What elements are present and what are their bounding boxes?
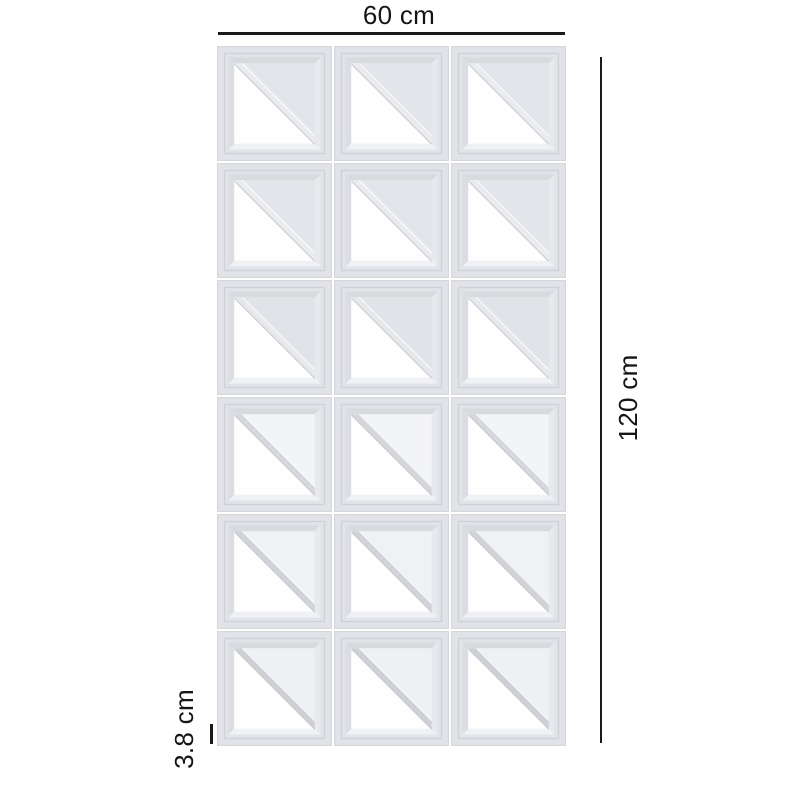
tile-graphic [451, 397, 566, 512]
tile-graphic [451, 514, 566, 629]
panel-tile-r5c1 [217, 514, 332, 629]
tile-graphic [334, 631, 449, 746]
tile-graphic [334, 46, 449, 161]
height-dimension-label: 120 cm [614, 354, 642, 441]
product-dimension-diagram: 60 cm 120 cm 3.8 cm [0, 0, 800, 800]
tile-graphic [334, 280, 449, 395]
panel-tile-r3c1 [217, 280, 332, 395]
panel-tile-r1c3 [451, 46, 566, 161]
panel-tile-r4c2 [334, 397, 449, 512]
thickness-dimension-label: 3.8 cm [170, 689, 198, 769]
tile-graphic [217, 514, 332, 629]
width-dimension-label: 60 cm [363, 1, 435, 29]
panel-tile-r6c3 [451, 631, 566, 746]
height-dimension-line [600, 57, 602, 743]
breeze-block-panel [217, 46, 566, 745]
tile-graphic [334, 397, 449, 512]
panel-tile-r4c1 [217, 397, 332, 512]
thickness-dimension-tick [210, 724, 213, 744]
panel-tile-r3c2 [334, 280, 449, 395]
panel-tile-r1c2 [334, 46, 449, 161]
tile-graphic [451, 280, 566, 395]
tile-graphic [217, 163, 332, 278]
panel-tile-r2c1 [217, 163, 332, 278]
tile-graphic [451, 631, 566, 746]
tile-graphic [334, 514, 449, 629]
tile-graphic [217, 46, 332, 161]
tile-graphic [217, 397, 332, 512]
tile-graphic [451, 163, 566, 278]
panel-tile-r6c1 [217, 631, 332, 746]
panel-tile-r2c2 [334, 163, 449, 278]
tile-graphic [334, 163, 449, 278]
tile-graphic [217, 280, 332, 395]
width-dimension-line [218, 32, 565, 35]
panel-tile-r5c3 [451, 514, 566, 629]
panel-tile-r5c2 [334, 514, 449, 629]
tile-graphic [451, 46, 566, 161]
panel-tile-r2c3 [451, 163, 566, 278]
panel-tile-r6c2 [334, 631, 449, 746]
panel-tile-r4c3 [451, 397, 566, 512]
panel-tile-r3c3 [451, 280, 566, 395]
tile-graphic [217, 631, 332, 746]
panel-tile-r1c1 [217, 46, 332, 161]
